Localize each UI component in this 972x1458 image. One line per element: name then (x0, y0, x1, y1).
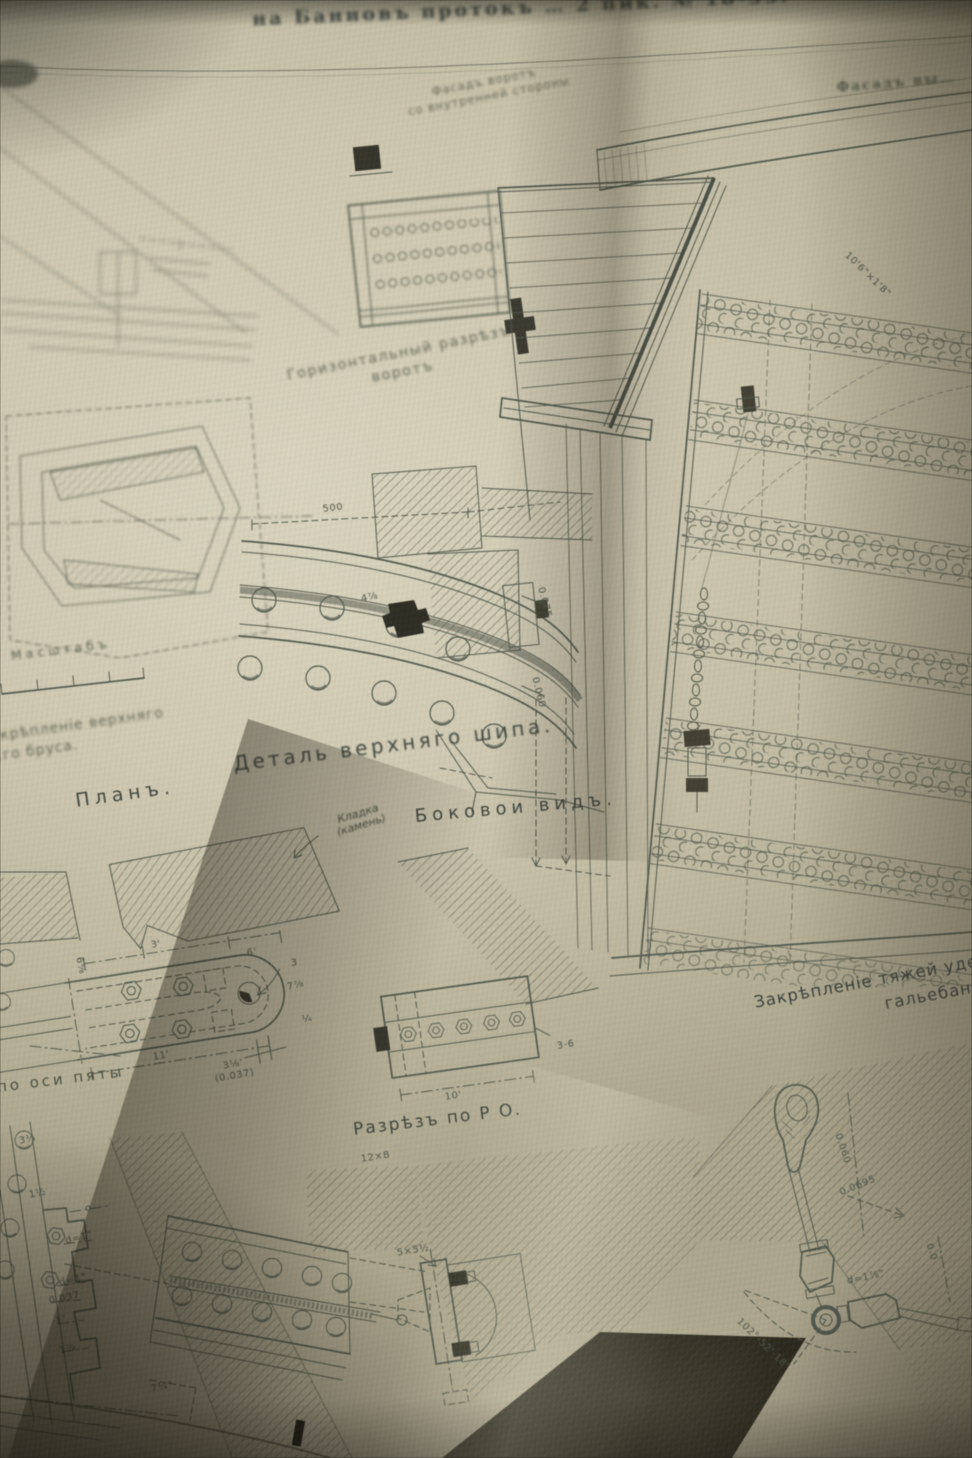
dimension-label: 3' (150, 938, 162, 950)
photographed-blueprint-sheet: …о шлюзовъ съ выводо… на Банновъ протокъ… (0, 0, 972, 1458)
left-edge-fragment (0, 872, 120, 1056)
gate-plan-section (6, 398, 312, 658)
gate-chain (688, 588, 709, 730)
dimension-label: ¼ (301, 1013, 313, 1026)
dark-mark (353, 145, 381, 172)
heel-axis-section (0, 1122, 352, 1458)
top-left-section-drawing (0, 60, 338, 360)
hinge-strap-plan (0, 824, 361, 1109)
dimension-label: 6' (246, 946, 258, 958)
small-gate-elevation (348, 191, 510, 327)
gate-facade-riveted (498, 78, 972, 1025)
title-rule (0, 36, 972, 77)
scale-bar (1, 668, 144, 694)
